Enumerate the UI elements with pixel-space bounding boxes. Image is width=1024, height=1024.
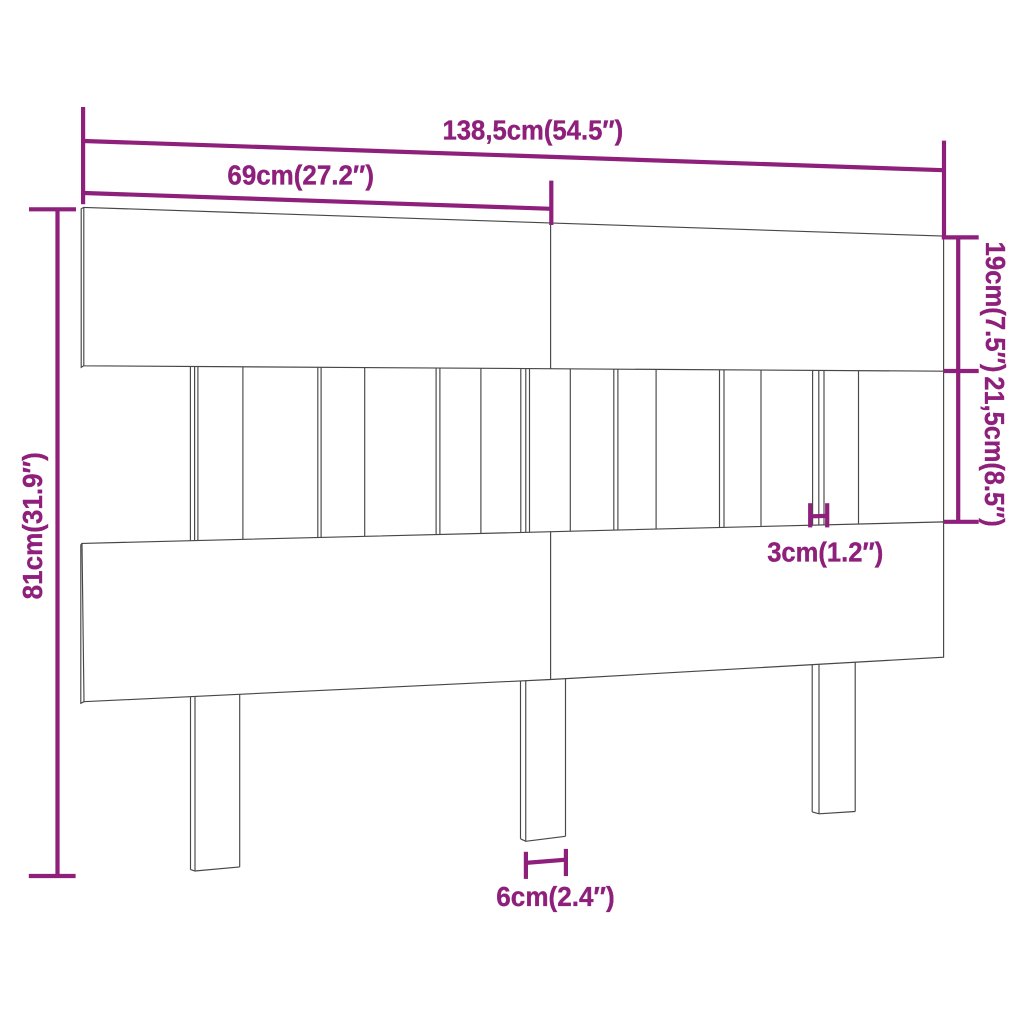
svg-text:19cm(7.5″): 19cm(7.5″) <box>980 242 1011 373</box>
svg-text:6cm(2.4″): 6cm(2.4″) <box>496 881 614 912</box>
svg-text:138,5cm(54.5″): 138,5cm(54.5″) <box>443 115 624 146</box>
svg-text:69cm(27.2″): 69cm(27.2″) <box>227 160 374 191</box>
svg-text:3cm(1.2″): 3cm(1.2″) <box>767 537 883 568</box>
svg-text:81cm(31.9″): 81cm(31.9″) <box>17 452 48 599</box>
svg-text:21,5cm(8.5″): 21,5cm(8.5″) <box>979 376 1010 526</box>
